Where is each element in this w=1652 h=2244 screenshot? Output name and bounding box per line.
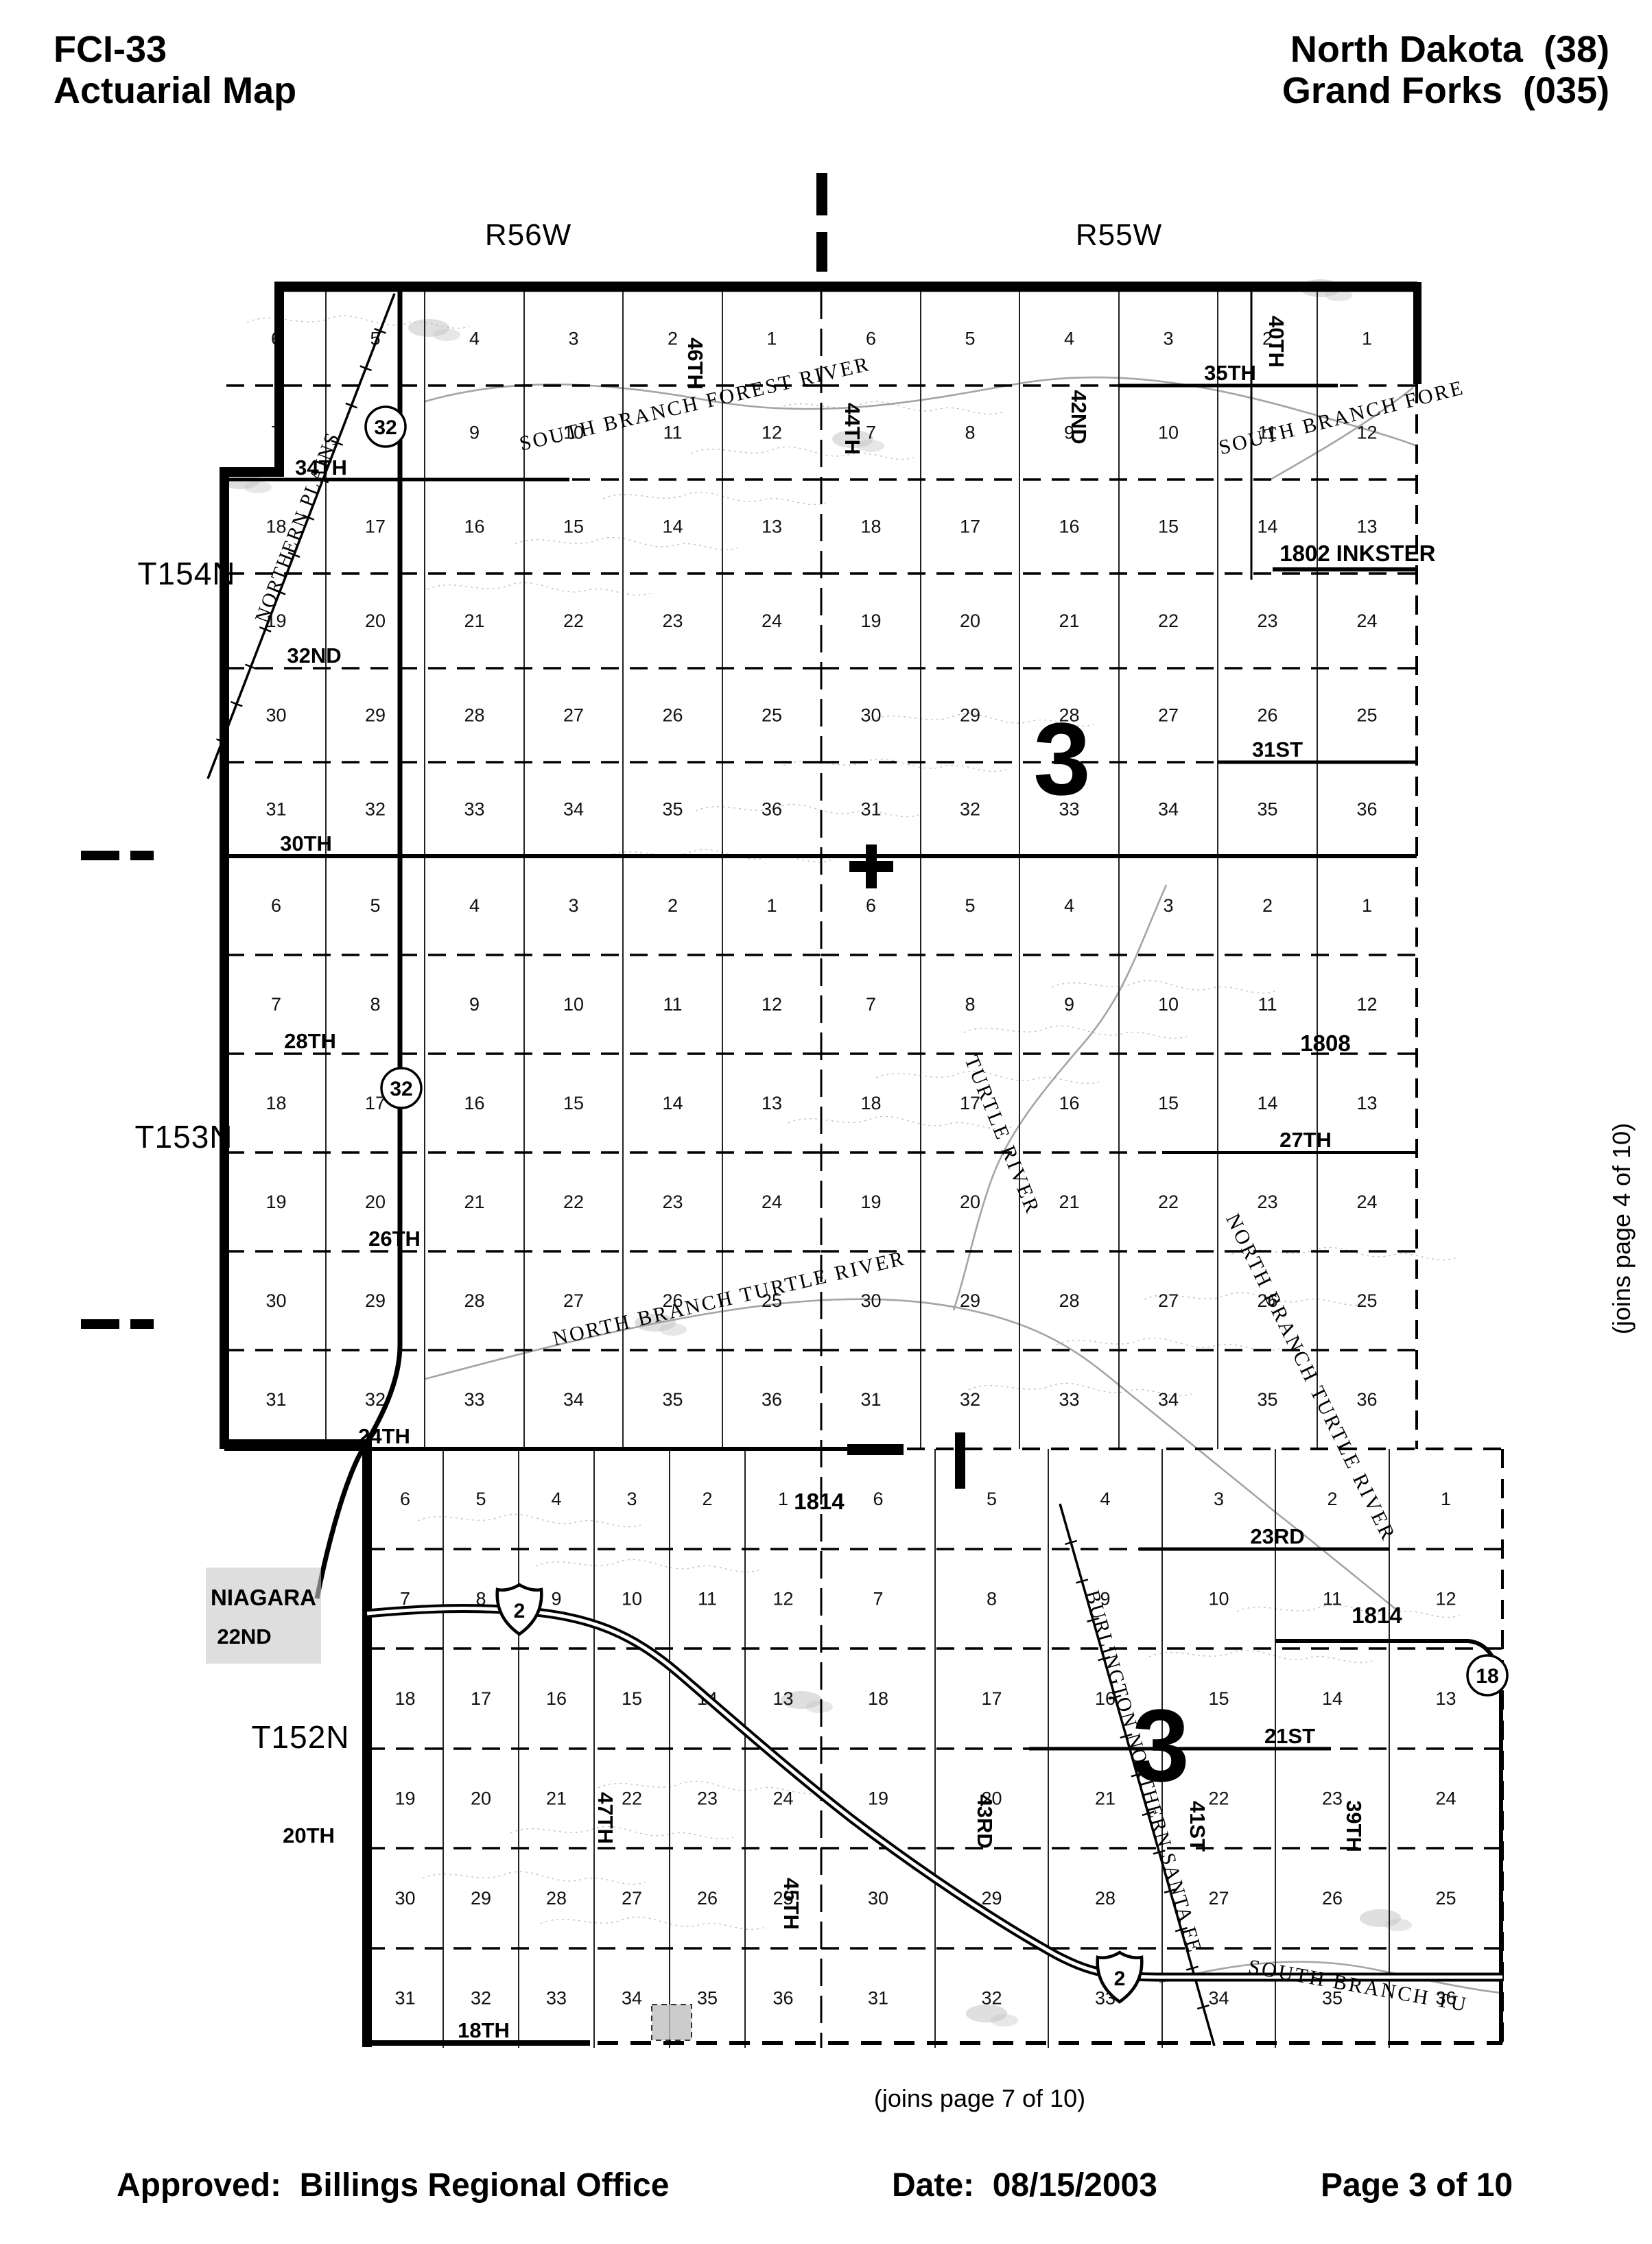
section-number: 12: [1356, 423, 1377, 443]
section-number: 1: [766, 329, 777, 349]
section-number: 31: [868, 1988, 888, 2009]
town-label: 1808: [1300, 1030, 1350, 1056]
section-number: 28: [1095, 1888, 1116, 1909]
road-label: 45TH: [779, 1878, 803, 1930]
section-number: 1: [766, 895, 777, 916]
section-number: 15: [563, 517, 584, 537]
section-number: 35: [697, 1988, 718, 2009]
section-number: 13: [772, 1688, 793, 1709]
section-number: 16: [546, 1688, 567, 1709]
section-number: 1: [1441, 1489, 1451, 1509]
road-label: 35TH: [1204, 361, 1256, 385]
section-number: 8: [370, 994, 380, 1015]
section-number: 27: [563, 705, 584, 726]
section-number: 21: [464, 611, 484, 631]
road-label: 47TH: [593, 1792, 617, 1844]
section-number: 2: [702, 1489, 712, 1509]
section-number: 23: [1257, 1192, 1277, 1212]
section-number: 4: [551, 1489, 561, 1509]
section-number: 35: [1257, 1389, 1277, 1410]
section-number: 15: [563, 1093, 584, 1113]
section-number: 11: [663, 423, 682, 443]
section-number: 15: [622, 1688, 642, 1709]
contour-line: [427, 582, 650, 595]
section-number: 19: [860, 611, 881, 631]
section-number: 17: [471, 1688, 491, 1709]
contour-line: [1057, 1338, 1279, 1350]
section-number: 36: [1356, 799, 1377, 820]
contour-line: [603, 492, 826, 504]
section-number: 33: [464, 799, 484, 820]
section-number: 9: [469, 994, 480, 1015]
section-number: 31: [860, 1389, 881, 1410]
contour-line: [418, 1514, 641, 1526]
section-number: 29: [365, 705, 386, 726]
section-number: 21: [1095, 1788, 1116, 1809]
section-number: 25: [1435, 1888, 1456, 1909]
section-number: 7: [271, 994, 281, 1015]
section-number: 34: [563, 1389, 584, 1410]
section-number: 20: [471, 1788, 491, 1809]
road-label: 22ND: [217, 1625, 271, 1649]
section-number: 9: [469, 423, 480, 443]
section-number: 33: [464, 1389, 484, 1410]
section-number: 14: [1257, 1093, 1277, 1113]
vegetation-patch: [433, 329, 460, 341]
section-number: 16: [1059, 1093, 1079, 1113]
section-number: 33: [546, 1988, 567, 2009]
contour-line: [536, 1559, 759, 1572]
section-number: 6: [400, 1489, 410, 1509]
section-number: 32: [471, 1988, 491, 2009]
road-label: 28TH: [284, 1029, 336, 1053]
road-label: 32ND: [287, 643, 341, 668]
edge-tick-dash: [81, 1319, 119, 1329]
road-label: 31ST: [1252, 737, 1303, 761]
section-number: 15: [1158, 1093, 1179, 1113]
section-number: 24: [1356, 611, 1377, 631]
section-number: 20: [960, 611, 980, 631]
section-number: 29: [365, 1290, 386, 1311]
section-number: 32: [960, 1389, 980, 1410]
section-number: 20: [365, 1192, 386, 1212]
section-number: 31: [860, 799, 881, 820]
section-number: 1: [1362, 329, 1372, 349]
section-number: 21: [546, 1788, 567, 1809]
section-number: 15: [1208, 1688, 1229, 1709]
section-number: 32: [960, 799, 980, 820]
section-number: 25: [762, 705, 782, 726]
section-number: 21: [1059, 1192, 1079, 1212]
road-label: 26TH: [368, 1227, 421, 1251]
section-number: 3: [1163, 895, 1173, 916]
section-number: 19: [860, 1192, 881, 1212]
section-number: 13: [762, 517, 782, 537]
section-number: 13: [1435, 1688, 1456, 1709]
section-number: 18: [868, 1688, 888, 1709]
section-number: 12: [1356, 994, 1377, 1015]
road-label: 30TH: [280, 831, 332, 855]
road-label: 18TH: [458, 2018, 510, 2042]
section-number: 36: [1356, 1389, 1377, 1410]
section-number: 32: [981, 1988, 1002, 2009]
section-number: 26: [1322, 1888, 1343, 1909]
section-number: 36: [772, 1988, 793, 2009]
section-number: 11: [663, 994, 682, 1015]
section-number: 27: [622, 1888, 642, 1909]
town-label: 1814: [1352, 1603, 1402, 1628]
section-number: 35: [662, 799, 683, 820]
section-number: 12: [762, 994, 782, 1015]
road-label: 27TH: [1279, 1128, 1332, 1152]
vegetation-patch: [805, 1701, 833, 1713]
section-number: 30: [265, 705, 286, 726]
boundary-tee-mark: [847, 1444, 904, 1455]
contour-line: [515, 537, 738, 550]
section-number: 25: [1356, 705, 1377, 726]
road-label: 23RD: [1250, 1524, 1304, 1548]
road-label: 42ND: [1067, 390, 1091, 444]
edge-tick-dash: [130, 851, 154, 860]
section-number: 5: [965, 329, 975, 349]
section-number: 13: [762, 1093, 782, 1113]
section-number: 9: [1064, 994, 1074, 1015]
contour-line: [964, 1026, 1187, 1038]
section-number: 35: [662, 1389, 683, 1410]
section-number: 32: [365, 1389, 386, 1410]
section-number: 2: [668, 329, 678, 349]
section-number: 3: [1214, 1489, 1224, 1509]
road-label: 39TH: [1342, 1800, 1366, 1852]
contour-line: [541, 1917, 764, 1929]
section-number: 19: [265, 1192, 286, 1212]
section-number: 33: [1059, 1389, 1079, 1410]
section-number: 3: [1163, 329, 1173, 349]
section-number: 27: [563, 1290, 584, 1311]
section-number: 26: [1257, 705, 1277, 726]
highway-32-road: [317, 292, 400, 1598]
section-number: 28: [464, 705, 484, 726]
section-number: 7: [873, 1589, 883, 1609]
section-number: 24: [762, 1192, 782, 1212]
section-number: 28: [546, 1888, 567, 1909]
section-number: 26: [697, 1888, 718, 1909]
town-label: NIAGARA: [211, 1585, 316, 1610]
section-number: 29: [981, 1888, 1002, 1909]
edge-tick-dash: [81, 851, 119, 860]
section-number: 5: [475, 1489, 486, 1509]
river-label: NORTH BRANCH TURTLE RIVER: [1221, 1210, 1400, 1545]
section-number: 30: [860, 705, 881, 726]
us-highway-number: 2: [1114, 1968, 1126, 1990]
section-number: 15: [1158, 517, 1179, 537]
section-number: 30: [868, 1888, 888, 1909]
section-number: 22: [563, 1192, 584, 1212]
road-label: 21ST: [1264, 1724, 1315, 1748]
state-highway-number: 32: [390, 1078, 412, 1100]
section-number: 14: [1257, 517, 1277, 537]
section-number: 29: [960, 1290, 980, 1311]
vegetation-patch: [244, 481, 272, 493]
section-number: 10: [1158, 423, 1179, 443]
section-number: 6: [271, 895, 281, 916]
section-number: 2: [1327, 1489, 1337, 1509]
section-number: 23: [697, 1788, 718, 1809]
section-number: 34: [1208, 1988, 1229, 2009]
section-number: 13: [1356, 517, 1377, 537]
cross-symbol: [866, 845, 877, 888]
section-number: 14: [1322, 1688, 1343, 1709]
section-number: 22: [1158, 611, 1179, 631]
section-number: 14: [662, 1093, 683, 1113]
section-number: 10: [563, 994, 584, 1015]
section-number: 4: [1064, 895, 1074, 916]
section-number: 13: [1356, 1093, 1377, 1113]
section-number: 1: [1362, 895, 1372, 916]
section-number: 4: [1100, 1489, 1110, 1509]
contour-line: [696, 804, 919, 816]
section-number: 34: [1158, 799, 1179, 820]
section-number: 17: [365, 517, 386, 537]
road-label: 46TH: [683, 338, 707, 390]
range-divider-dash: [816, 232, 827, 272]
section-number: 9: [551, 1589, 561, 1609]
section-number: 5: [987, 1489, 997, 1509]
section-number: 22: [1158, 1192, 1179, 1212]
contour-line: [423, 1871, 646, 1884]
section-number: 8: [987, 1589, 997, 1609]
section-number: 18: [860, 1093, 881, 1113]
section-number: 19: [868, 1788, 888, 1809]
section-number: 18: [860, 517, 881, 537]
section-number: 24: [1356, 1192, 1377, 1212]
section-number: 2: [668, 895, 678, 916]
section-number: 4: [469, 895, 480, 916]
section-number: 22: [563, 611, 584, 631]
section-number: 23: [662, 1192, 683, 1212]
road-label: 43RD: [973, 1794, 997, 1848]
section-number: 8: [965, 423, 975, 443]
section-number: 34: [622, 1988, 642, 2009]
section-number: 17: [981, 1688, 1002, 1709]
road-label: 24TH: [358, 1424, 410, 1448]
section-number: 19: [394, 1788, 415, 1809]
contour-line: [783, 759, 1006, 771]
section-number: 28: [464, 1290, 484, 1311]
zone-number: 3: [1033, 701, 1090, 816]
road-label: 40TH: [1264, 316, 1288, 368]
section-number: 27: [1158, 1290, 1179, 1311]
town-label: 1814: [794, 1489, 845, 1514]
section-number: 27: [1158, 705, 1179, 726]
section-number: 22: [622, 1788, 642, 1809]
section-number: 34: [563, 799, 584, 820]
town-area-small: [652, 2005, 692, 2040]
section-number: 4: [1064, 329, 1074, 349]
actuarial-map-canvas: 6543217891011121817161514131920212223243…: [0, 0, 1652, 2244]
section-number: 4: [469, 329, 480, 349]
edge-tick-dash: [130, 1319, 154, 1329]
section-number: 23: [1257, 611, 1277, 631]
section-number: 3: [568, 329, 578, 349]
section-number: 11: [1323, 1589, 1342, 1609]
section-number: 6: [866, 895, 876, 916]
section-number: 21: [464, 1192, 484, 1212]
section-number: 20: [365, 611, 386, 631]
section-number: 5: [965, 895, 975, 916]
vegetation-patch: [991, 2014, 1018, 2027]
section-number: 12: [772, 1589, 793, 1609]
section-number: 6: [866, 329, 876, 349]
us-highway-number: 2: [514, 1600, 526, 1622]
state-highway-number: 18: [1476, 1665, 1498, 1688]
section-number: 12: [1435, 1589, 1456, 1609]
section-number: 6: [873, 1489, 883, 1509]
section-number: 26: [662, 705, 683, 726]
zone-number: 3: [1132, 1688, 1189, 1803]
town-label: INKSTER: [1336, 541, 1436, 566]
section-number: 16: [1059, 517, 1079, 537]
section-number: 11: [1258, 994, 1277, 1015]
section-number: 31: [394, 1988, 415, 2009]
section-number: 35: [1257, 799, 1277, 820]
section-number: 29: [960, 705, 980, 726]
town-area-niagara: [206, 1568, 321, 1664]
section-number: 1: [778, 1489, 788, 1509]
range-divider-dash: [816, 173, 827, 215]
section-number: 18: [394, 1688, 415, 1709]
boundary-tee-mark: [955, 1432, 965, 1489]
section-number: 16: [464, 1093, 484, 1113]
section-number: 14: [662, 517, 683, 537]
section-number: 29: [471, 1888, 491, 1909]
town-label: 1802: [1279, 541, 1330, 566]
section-number: 10: [1208, 1589, 1229, 1609]
section-number: 36: [762, 1389, 782, 1410]
contour-line: [510, 1826, 733, 1839]
section-number: 24: [1435, 1788, 1456, 1809]
state-highway-number: 32: [374, 416, 397, 439]
section-number: 30: [265, 1290, 286, 1311]
section-number: 12: [762, 423, 782, 443]
river-label: SOUTH BRANCH TU: [1247, 1955, 1470, 2016]
section-number: 18: [265, 1093, 286, 1113]
contour-line: [1052, 980, 1275, 993]
section-number: 10: [622, 1589, 642, 1609]
road-label: 44TH: [840, 403, 864, 455]
road-label: 41ST: [1185, 1801, 1209, 1852]
section-number: 30: [860, 1290, 881, 1311]
section-number: 21: [1059, 611, 1079, 631]
section-number: 11: [698, 1589, 717, 1609]
section-number: 34: [1158, 1389, 1179, 1410]
contour-line: [1237, 1605, 1460, 1617]
section-number: 2: [1262, 895, 1273, 916]
section-number: 17: [960, 517, 980, 537]
river-label: SOUTH BRANCH FORE: [1216, 376, 1467, 459]
section-number: 20: [960, 1192, 980, 1212]
section-number: 7: [866, 423, 876, 443]
section-number: 3: [568, 895, 578, 916]
section-number: 31: [265, 1389, 286, 1410]
actuarial-map-page: FCI-33 Actuarial Map North Dakota (38) G…: [0, 0, 1652, 2244]
section-number: 7: [866, 994, 876, 1015]
section-number: 22: [1208, 1788, 1229, 1809]
section-number: 10: [1158, 994, 1179, 1015]
section-number: 25: [1356, 1290, 1377, 1311]
section-number: 8: [965, 994, 975, 1015]
section-number: 23: [662, 611, 683, 631]
section-number: 32: [365, 799, 386, 820]
section-number: 5: [370, 895, 380, 916]
section-number: 24: [772, 1788, 793, 1809]
section-number: 28: [1059, 1290, 1079, 1311]
section-number: 3: [626, 1489, 637, 1509]
section-number: 27: [1208, 1888, 1229, 1909]
section-number: 30: [394, 1888, 415, 1909]
road-label: 20TH: [283, 1823, 335, 1847]
section-number: 36: [762, 799, 782, 820]
section-number: 16: [464, 517, 484, 537]
section-number: 31: [265, 799, 286, 820]
contour-line: [1149, 1650, 1372, 1662]
section-number: 23: [1322, 1788, 1343, 1809]
section-number: 24: [762, 611, 782, 631]
